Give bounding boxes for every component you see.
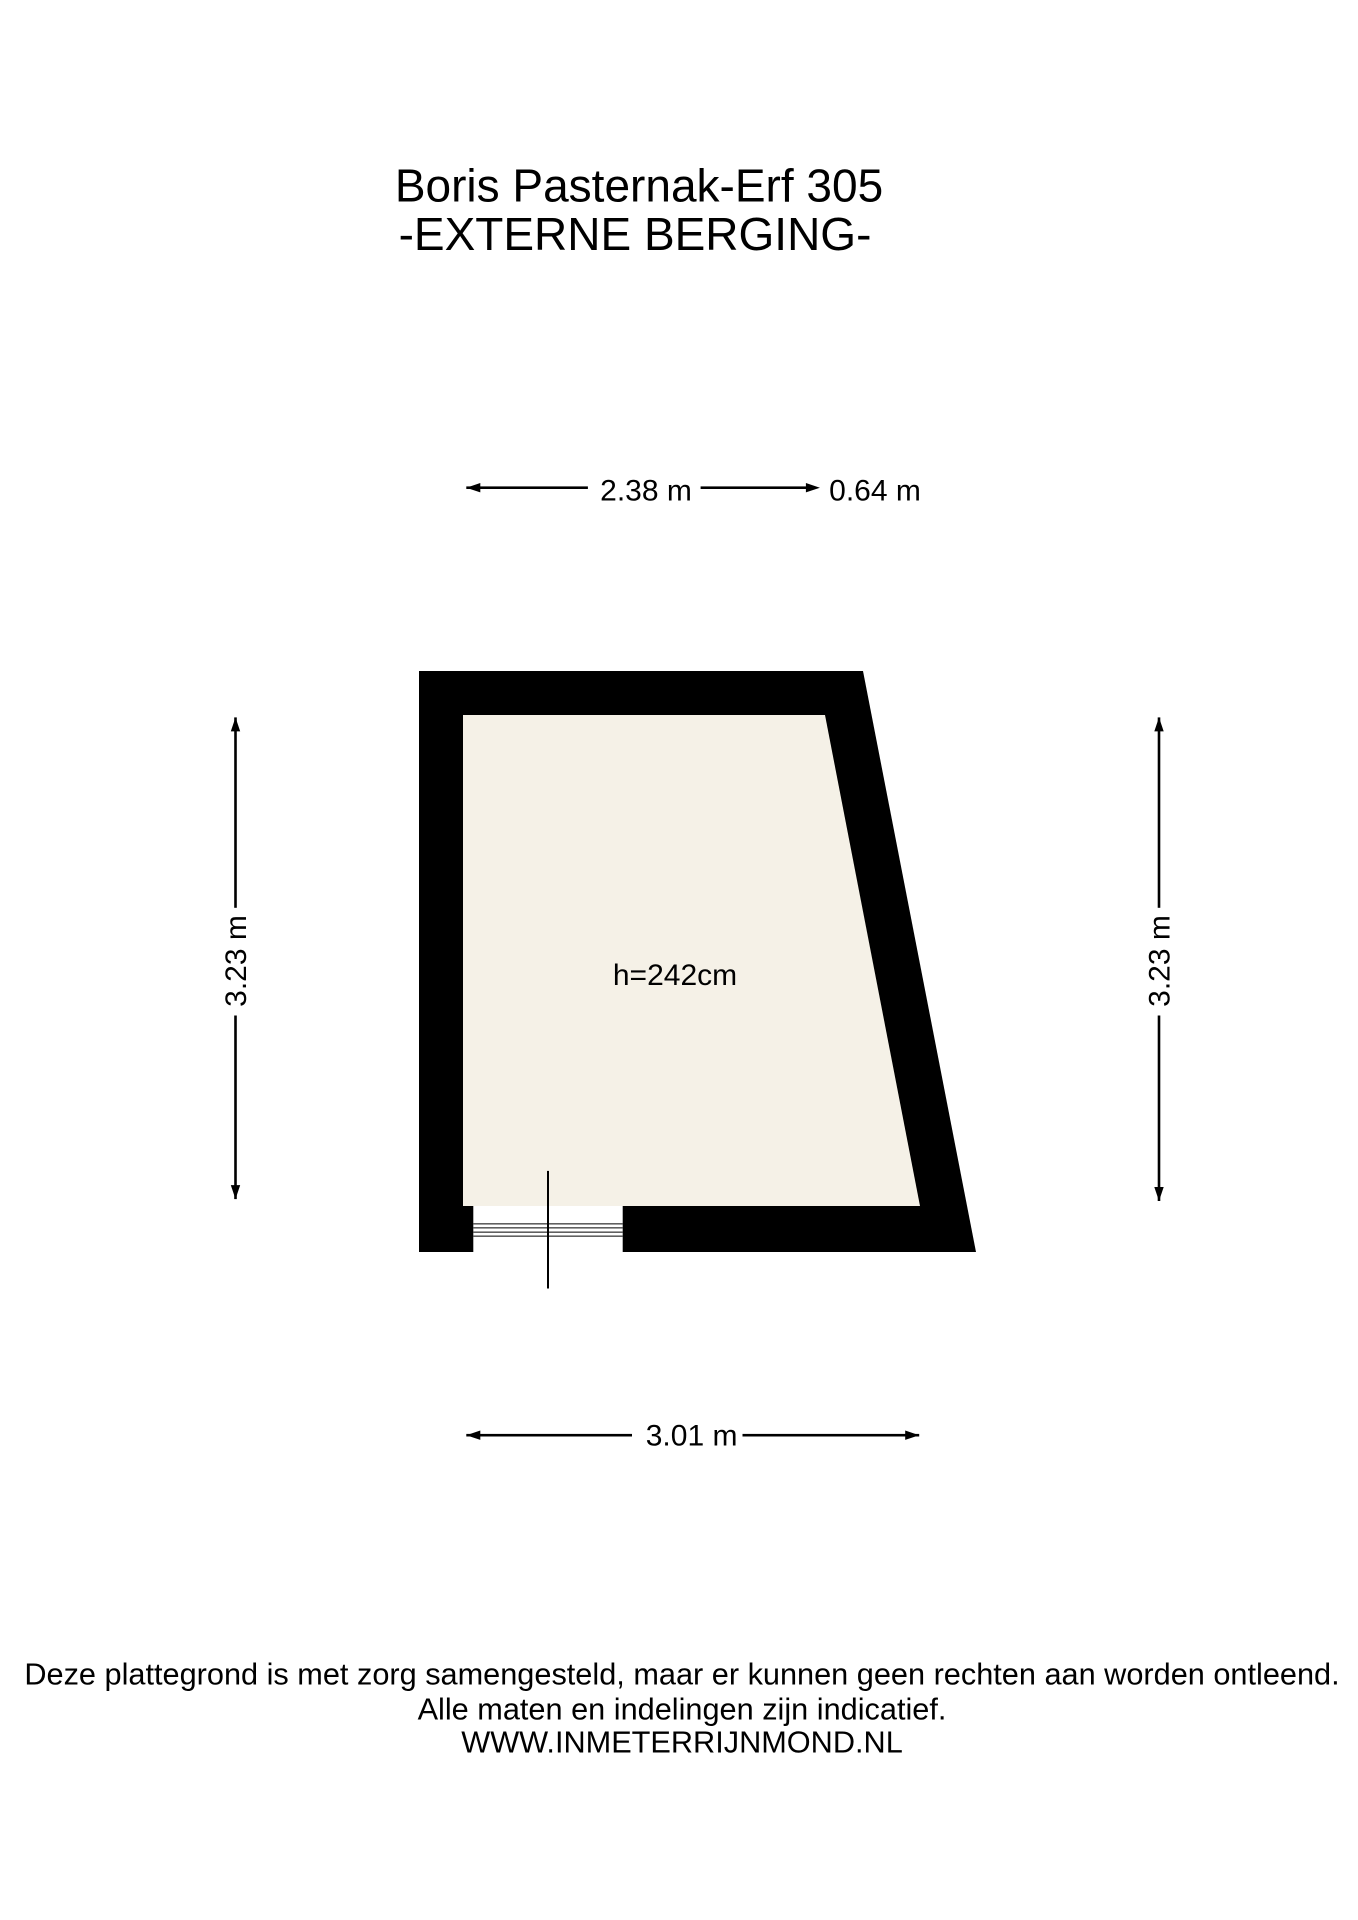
svg-text:h=242cm: h=242cm (613, 959, 737, 992)
svg-text:3.01 m: 3.01 m (646, 1419, 738, 1452)
svg-text:Deze plattegrond is met zorg s: Deze plattegrond is met zorg samengestel… (24, 1657, 1339, 1692)
svg-text:3.23 m: 3.23 m (1143, 915, 1176, 1007)
svg-text:Boris Pasternak-Erf 305: Boris Pasternak-Erf 305 (395, 160, 883, 212)
svg-text:Alle maten en indelingen zijn: Alle maten en indelingen zijn indicatief… (418, 1691, 947, 1726)
svg-text:-EXTERNE BERGING-: -EXTERNE BERGING- (399, 208, 872, 260)
svg-text:0.64 m: 0.64 m (829, 474, 921, 507)
svg-text:2.38 m: 2.38 m (600, 474, 692, 507)
svg-text:3.23 m: 3.23 m (220, 915, 253, 1007)
svg-text:WWW.INMETERRIJNMOND.NL: WWW.INMETERRIJNMOND.NL (461, 1725, 903, 1760)
